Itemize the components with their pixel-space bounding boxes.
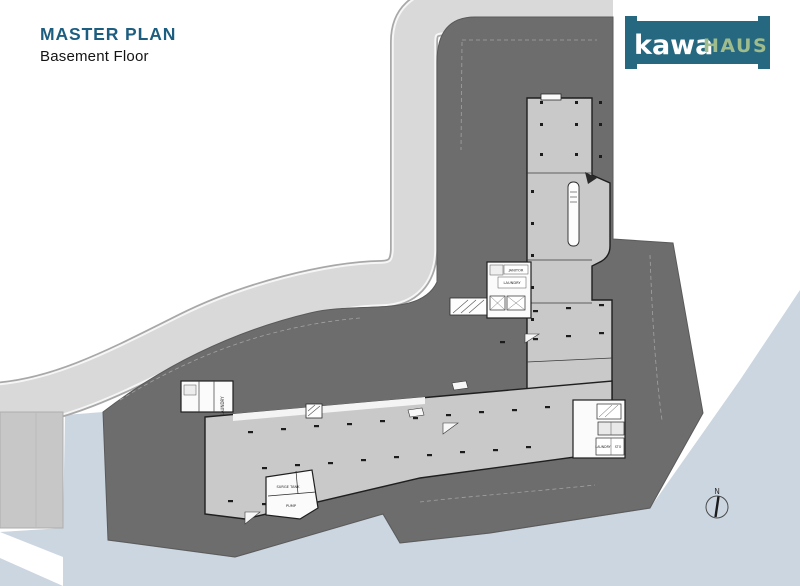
logo-word-secondary: HAUS xyxy=(703,35,768,57)
adjacent-parcel xyxy=(0,412,63,528)
annex-surge-pump: SURGE TANK PUMP xyxy=(266,470,318,519)
brand-logo: kawa HAUS xyxy=(625,16,770,69)
logo-word-primary: kawa xyxy=(634,30,713,61)
laundry-label: LAUNDRY xyxy=(503,281,521,285)
masterplan-canvas: LAUNDRY JANITOR LAUNDRY xyxy=(0,0,800,586)
laundry-vertical-label: LAUNDRY xyxy=(220,396,225,416)
parcel-block xyxy=(0,412,63,528)
surge-tank-label: SURGE TANK xyxy=(276,485,300,489)
site-plan-drawing: LAUNDRY JANITOR LAUNDRY xyxy=(0,0,800,586)
sto-label: STO xyxy=(615,445,622,449)
janitor-label: JANITOR xyxy=(508,269,524,273)
page-title: MASTER PLAN xyxy=(40,24,176,45)
tower-top-notch xyxy=(541,94,561,100)
annex-right: LAUNDRY STO xyxy=(573,400,625,458)
stair-box-junction xyxy=(450,298,488,315)
north-label: N xyxy=(714,487,720,496)
annex-left: LAUNDRY xyxy=(181,381,233,416)
page-subtitle: Basement Floor xyxy=(40,48,176,65)
annex-janitor-laundry: JANITOR LAUNDRY xyxy=(487,262,531,318)
stair-box-corridor xyxy=(306,404,322,418)
plan-header: MASTER PLAN Basement Floor xyxy=(40,24,176,65)
laundry-right-label: LAUNDRY xyxy=(595,445,610,449)
pump-label: PUMP xyxy=(286,504,297,508)
